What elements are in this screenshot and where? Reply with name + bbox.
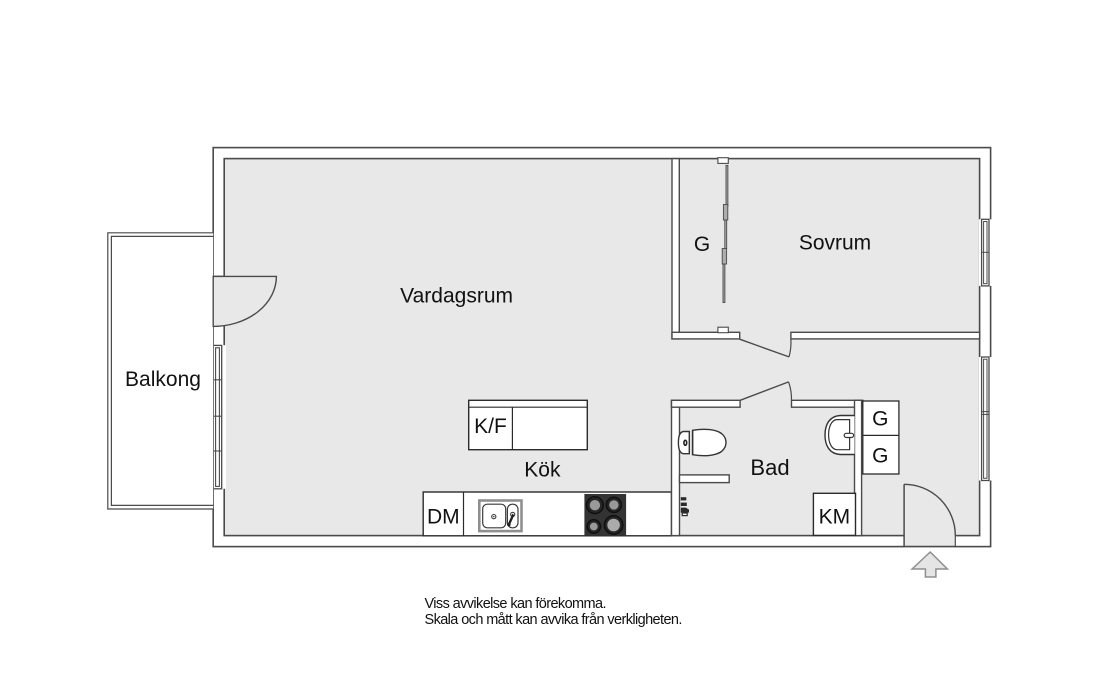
svg-text:K/F: K/F (474, 415, 507, 438)
svg-text:DM: DM (427, 505, 460, 528)
svg-text:Viss avvikelse kan förekomma.: Viss avvikelse kan förekomma. (425, 596, 606, 612)
svg-text:Skala och mått kan avvika från: Skala och mått kan avvika från verklighe… (425, 612, 682, 628)
svg-text:Bad: Bad (750, 455, 789, 480)
svg-text:Sovrum: Sovrum (799, 231, 871, 254)
svg-text:Kök: Kök (524, 459, 561, 482)
svg-text:G: G (872, 408, 888, 431)
svg-text:KM: KM (819, 505, 851, 528)
svg-text:G: G (694, 233, 710, 256)
svg-text:Balkong: Balkong (125, 368, 201, 391)
svg-text:Vardagsrum: Vardagsrum (400, 285, 513, 308)
svg-text:G: G (872, 444, 888, 467)
